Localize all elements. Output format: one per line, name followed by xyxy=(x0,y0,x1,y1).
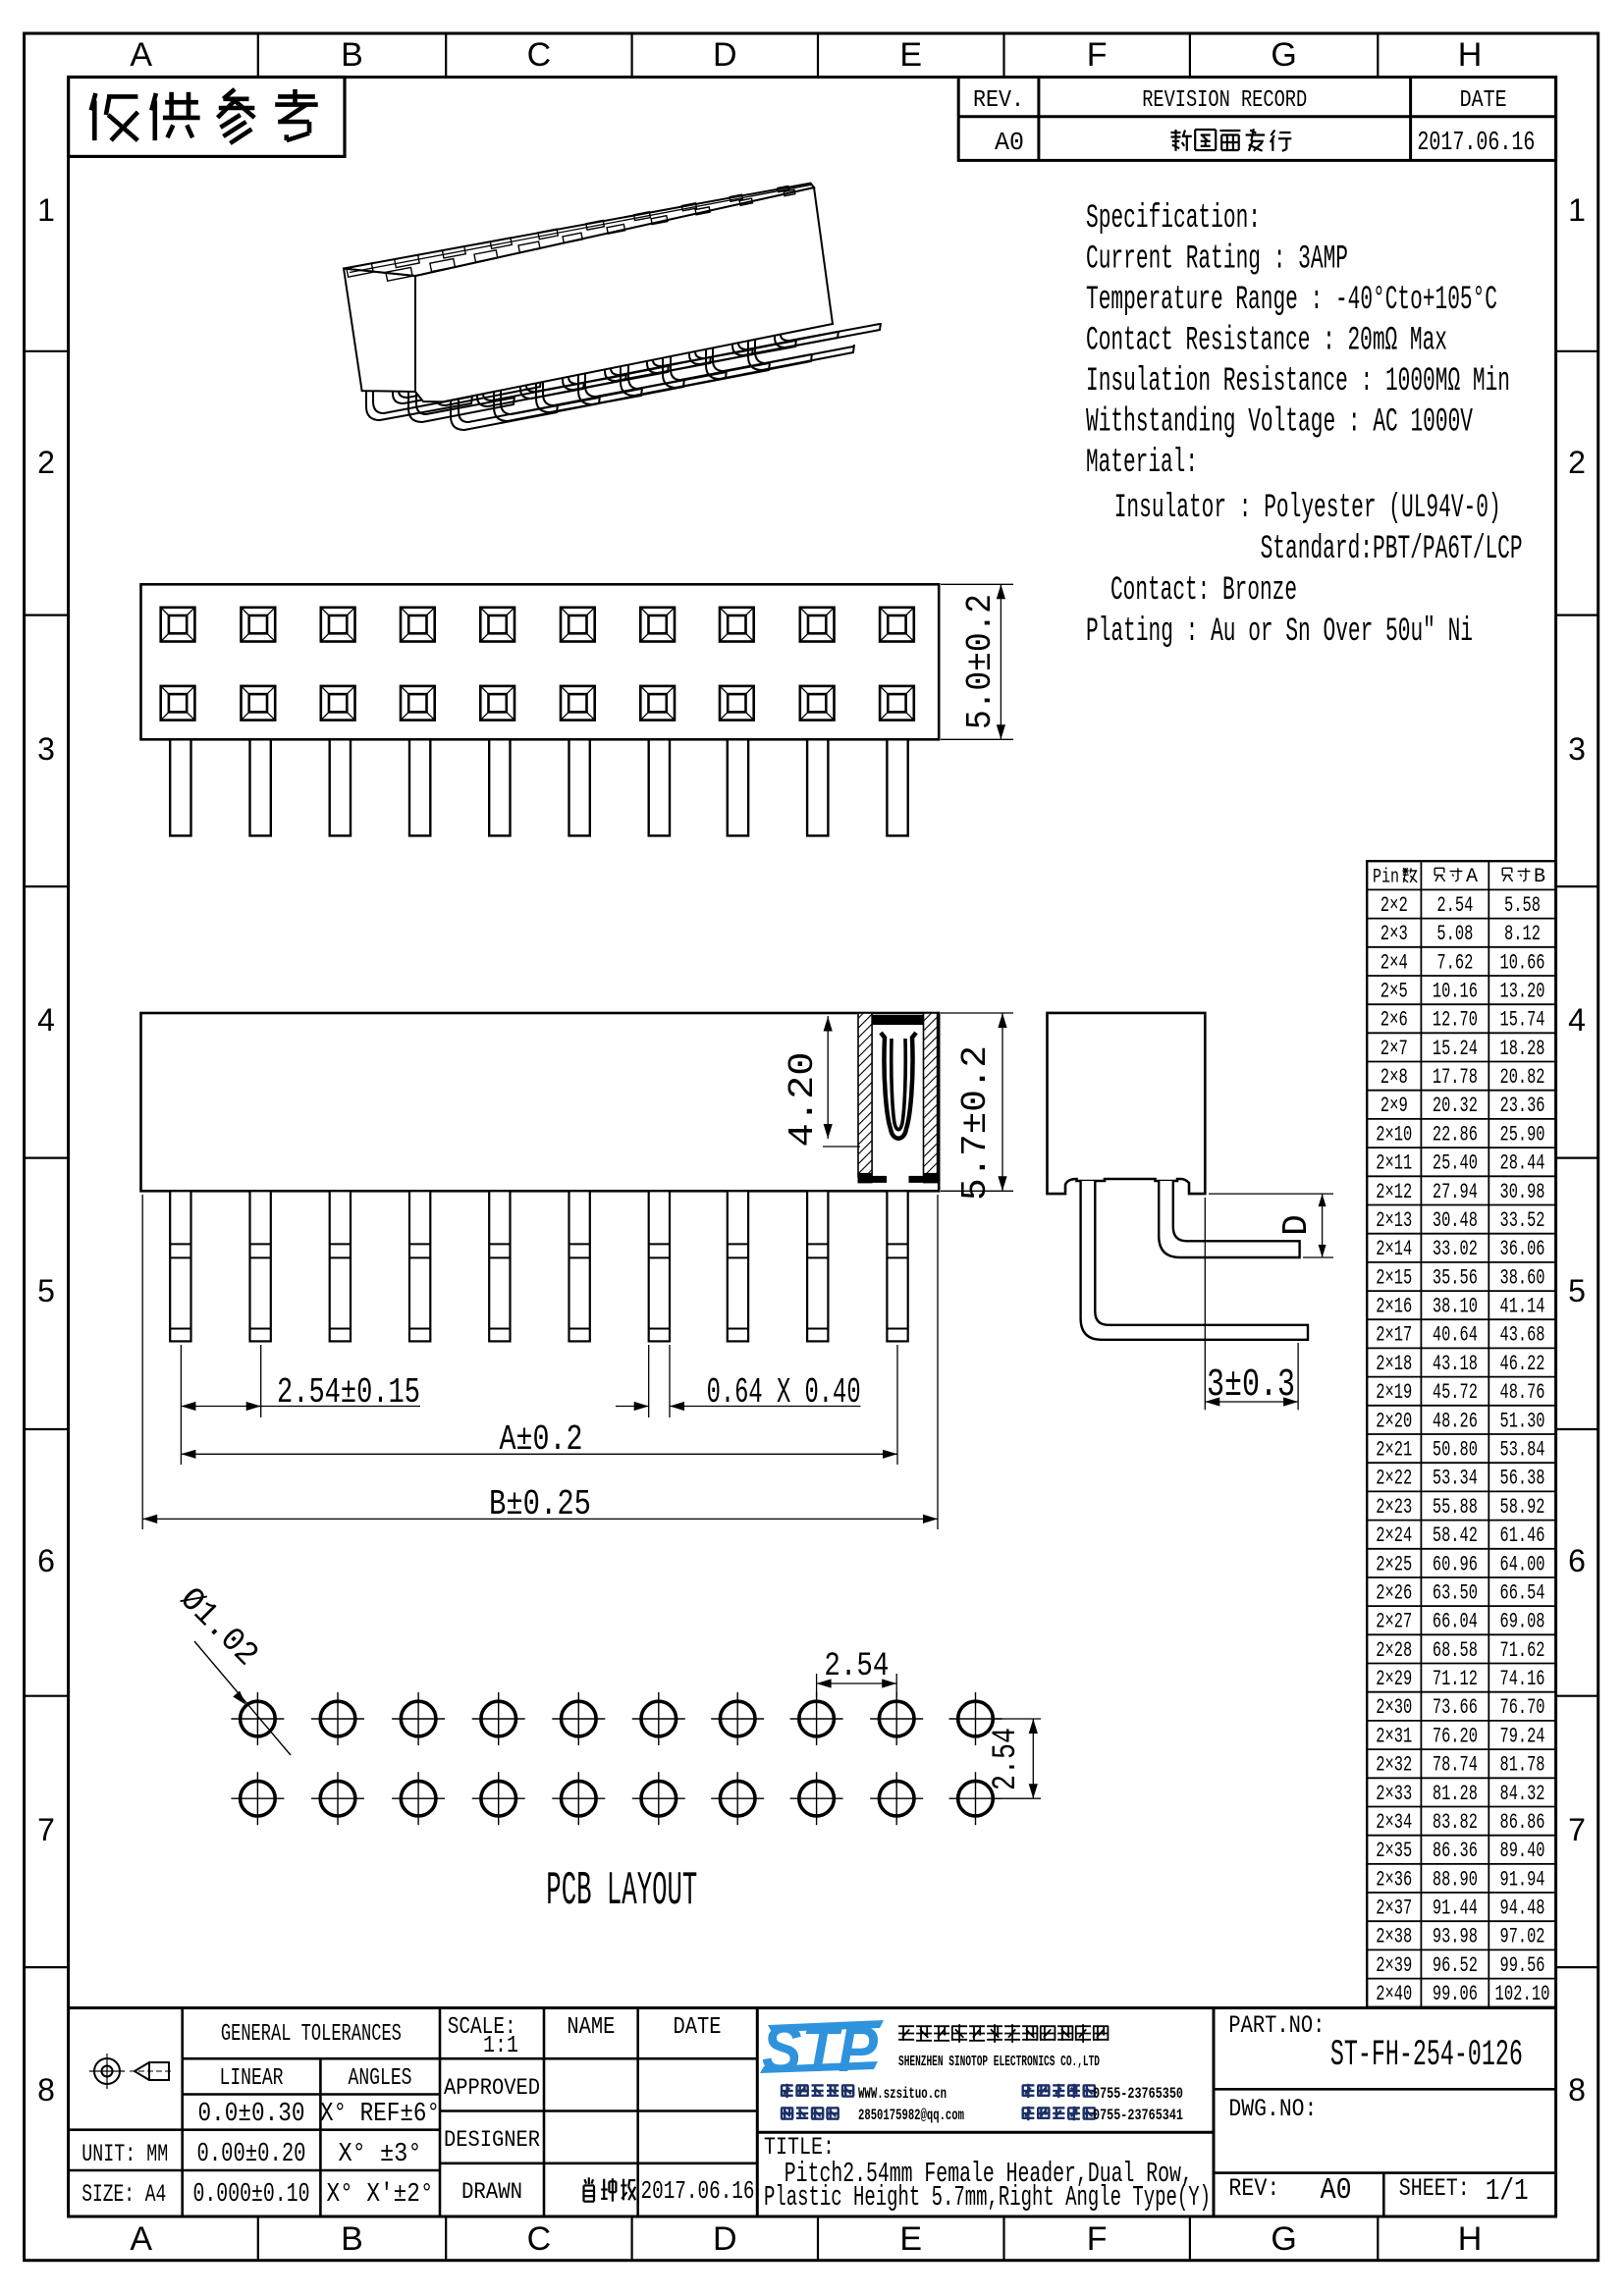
svg-text:2×20: 2×20 xyxy=(1376,1409,1412,1433)
svg-text:3±0.3: 3±0.3 xyxy=(1207,1363,1295,1408)
svg-text:7: 7 xyxy=(37,1812,55,1847)
svg-text:2×31: 2×31 xyxy=(1376,1724,1412,1748)
svg-text:10.66: 10.66 xyxy=(1500,950,1545,975)
svg-text:DWG.NO:: DWG.NO: xyxy=(1228,2095,1317,2123)
svg-text:91.44: 91.44 xyxy=(1433,1896,1478,1921)
svg-text:2017.06.16: 2017.06.16 xyxy=(641,2176,755,2206)
svg-text:Contact: Bronze: Contact: Bronze xyxy=(1110,572,1297,610)
svg-text:2.54±0.15: 2.54±0.15 xyxy=(277,1372,420,1413)
svg-text:REV.: REV. xyxy=(973,87,1024,114)
svg-text:55.88: 55.88 xyxy=(1433,1495,1478,1520)
svg-text:83.82: 83.82 xyxy=(1433,1810,1478,1835)
svg-text:41.14: 41.14 xyxy=(1500,1295,1545,1319)
svg-text:61.46: 61.46 xyxy=(1500,1523,1545,1548)
svg-text:2×24: 2×24 xyxy=(1376,1523,1412,1548)
svg-text:2.54: 2.54 xyxy=(988,1728,1025,1790)
svg-text:ST-FH-254-0126: ST-FH-254-0126 xyxy=(1330,2035,1523,2076)
svg-text:91.94: 91.94 xyxy=(1500,1867,1545,1892)
svg-text:81.28: 81.28 xyxy=(1433,1782,1478,1806)
svg-text:79.24: 79.24 xyxy=(1500,1724,1545,1748)
svg-text:15.24: 15.24 xyxy=(1433,1037,1478,1061)
svg-text:G: G xyxy=(1271,2220,1296,2258)
svg-text:28.44: 28.44 xyxy=(1500,1151,1545,1176)
svg-text:2017.06.16: 2017.06.16 xyxy=(1417,129,1535,158)
svg-text:Standard:PBT/PA6T/LCP: Standard:PBT/PA6T/LCP xyxy=(1261,531,1523,568)
svg-text:H: H xyxy=(1458,2220,1483,2258)
svg-text:2×18: 2×18 xyxy=(1376,1352,1412,1376)
svg-text:4: 4 xyxy=(1568,1002,1586,1038)
svg-text:F: F xyxy=(1087,2220,1108,2258)
svg-text:Plastic Height 5.7mm,Right Ang: Plastic Height 5.7mm,Right Angle Type(Y) xyxy=(764,2181,1211,2214)
svg-text:A0: A0 xyxy=(995,128,1024,157)
svg-text:58.92: 58.92 xyxy=(1500,1495,1545,1520)
svg-text:Insulation Resistance : 1000MΩ: Insulation Resistance : 1000MΩ Min xyxy=(1086,363,1510,400)
svg-text:G: G xyxy=(1271,36,1296,74)
svg-text:WWW.szsituo.cn: WWW.szsituo.cn xyxy=(858,2085,947,2103)
svg-text:1/1: 1/1 xyxy=(1486,2174,1529,2209)
svg-text:A0: A0 xyxy=(1321,2173,1352,2208)
svg-text:2×30: 2×30 xyxy=(1376,1695,1412,1720)
svg-text:Insulator : Polyester (UL94V-0: Insulator : Polyester (UL94V-0) xyxy=(1114,490,1501,527)
svg-text:REV:: REV: xyxy=(1228,2174,1279,2203)
svg-text:2×22: 2×22 xyxy=(1376,1467,1412,1491)
svg-text:2×11: 2×11 xyxy=(1376,1151,1412,1176)
svg-text:Contact Resistance : 20mΩ Max: Contact Resistance : 20mΩ Max xyxy=(1086,323,1447,360)
svg-text:76.20: 76.20 xyxy=(1433,1724,1478,1748)
svg-text:84.32: 84.32 xyxy=(1500,1782,1545,1806)
svg-text:2×19: 2×19 xyxy=(1376,1380,1412,1405)
svg-text:B: B xyxy=(341,36,363,74)
svg-text:53.84: 53.84 xyxy=(1500,1438,1545,1463)
svg-text:6: 6 xyxy=(37,1543,55,1578)
svg-text:48.76: 48.76 xyxy=(1500,1380,1545,1405)
svg-text:2.54: 2.54 xyxy=(824,1648,889,1685)
svg-text:0.64 X 0.40: 0.64 X 0.40 xyxy=(707,1372,861,1413)
svg-text:94.48: 94.48 xyxy=(1500,1896,1545,1921)
svg-text:4: 4 xyxy=(37,1002,55,1038)
svg-text:X° REF±6°: X° REF±6° xyxy=(320,2100,440,2129)
svg-text:D: D xyxy=(713,36,737,74)
svg-text:ANGLES: ANGLES xyxy=(349,2065,412,2092)
svg-text:33.02: 33.02 xyxy=(1433,1237,1478,1261)
svg-text:E: E xyxy=(899,2220,922,2258)
svg-text:Plating : Au or Sn Over 50u" N: Plating : Au or Sn Over 50u" Ni xyxy=(1086,614,1473,651)
svg-text:38.10: 38.10 xyxy=(1433,1295,1478,1319)
svg-text:71.12: 71.12 xyxy=(1433,1667,1478,1691)
svg-text:2×40: 2×40 xyxy=(1376,1982,1412,2006)
svg-text:38.60: 38.60 xyxy=(1500,1265,1545,1290)
svg-text:D: D xyxy=(1276,1214,1317,1236)
svg-text:0.0±0.30: 0.0±0.30 xyxy=(198,2100,305,2129)
svg-text:1: 1 xyxy=(37,192,55,228)
svg-text:81.78: 81.78 xyxy=(1500,1753,1545,1778)
svg-text:96.52: 96.52 xyxy=(1433,1953,1478,1978)
svg-text:56.38: 56.38 xyxy=(1500,1467,1545,1491)
svg-text:53.34: 53.34 xyxy=(1433,1467,1478,1491)
svg-text:DESIGNER: DESIGNER xyxy=(444,2127,540,2153)
svg-text:13.20: 13.20 xyxy=(1500,980,1545,1004)
svg-text:B: B xyxy=(1534,866,1545,888)
svg-text:43.18: 43.18 xyxy=(1433,1352,1478,1376)
svg-text:88.90: 88.90 xyxy=(1433,1867,1478,1892)
svg-text:1: 1 xyxy=(1568,192,1586,228)
svg-text:71.62: 71.62 xyxy=(1500,1638,1545,1663)
svg-text:SHEET:: SHEET: xyxy=(1399,2174,1470,2203)
svg-text:2×9: 2×9 xyxy=(1380,1094,1408,1118)
svg-text:66.04: 66.04 xyxy=(1433,1610,1478,1634)
svg-text:1:1: 1:1 xyxy=(483,2033,518,2059)
svg-text:D: D xyxy=(713,2220,737,2258)
svg-text:PCB LAYOUT: PCB LAYOUT xyxy=(546,1865,697,1918)
svg-text:5: 5 xyxy=(1568,1273,1586,1308)
svg-text:LINEAR: LINEAR xyxy=(220,2065,284,2092)
svg-text:78.74: 78.74 xyxy=(1433,1753,1478,1778)
svg-text:NAME: NAME xyxy=(567,2014,615,2041)
svg-text:18.28: 18.28 xyxy=(1500,1037,1545,1061)
svg-text:33.52: 33.52 xyxy=(1500,1208,1545,1233)
svg-text:A: A xyxy=(1466,866,1478,888)
svg-text:17.78: 17.78 xyxy=(1433,1065,1478,1090)
svg-text:2×23: 2×23 xyxy=(1376,1495,1412,1520)
svg-text:2×14: 2×14 xyxy=(1376,1237,1412,1261)
svg-text:68.58: 68.58 xyxy=(1433,1638,1478,1663)
svg-text:7: 7 xyxy=(1568,1812,1586,1847)
svg-text:30.48: 30.48 xyxy=(1433,1208,1478,1233)
svg-text:10.16: 10.16 xyxy=(1433,980,1478,1004)
svg-text:2×12: 2×12 xyxy=(1376,1180,1412,1204)
svg-text:43.68: 43.68 xyxy=(1500,1323,1545,1348)
svg-text:DRAWN: DRAWN xyxy=(461,2179,522,2205)
svg-text:30.98: 30.98 xyxy=(1500,1180,1545,1204)
svg-text:2: 2 xyxy=(37,445,55,480)
svg-text:X° X'±2°: X° X'±2° xyxy=(327,2180,434,2210)
svg-text:8.12: 8.12 xyxy=(1504,922,1541,946)
svg-text:2×4: 2×4 xyxy=(1380,950,1408,975)
svg-text:50.80: 50.80 xyxy=(1433,1438,1478,1463)
svg-text:2×7: 2×7 xyxy=(1380,1037,1408,1061)
svg-text:64.00: 64.00 xyxy=(1500,1552,1545,1576)
svg-text:99.56: 99.56 xyxy=(1500,1953,1545,1978)
svg-text:F: F xyxy=(1087,36,1108,74)
svg-text:58.42: 58.42 xyxy=(1433,1523,1478,1548)
svg-text:E: E xyxy=(899,36,922,74)
svg-text:12.70: 12.70 xyxy=(1433,1008,1478,1033)
svg-text:25.90: 25.90 xyxy=(1500,1122,1545,1147)
svg-text:2×34: 2×34 xyxy=(1376,1810,1412,1835)
svg-text:SIZE: A4: SIZE: A4 xyxy=(81,2180,166,2209)
svg-text:2×36: 2×36 xyxy=(1376,1867,1412,1892)
svg-text:20.82: 20.82 xyxy=(1500,1065,1545,1090)
svg-text:2×38: 2×38 xyxy=(1376,1925,1412,1949)
svg-text:2×32: 2×32 xyxy=(1376,1753,1412,1778)
svg-text:2×35: 2×35 xyxy=(1376,1839,1412,1863)
svg-text:63.50: 63.50 xyxy=(1433,1581,1478,1606)
svg-text:48.26: 48.26 xyxy=(1433,1409,1478,1433)
svg-text:46.22: 46.22 xyxy=(1500,1352,1545,1376)
svg-text:2×3: 2×3 xyxy=(1380,922,1408,946)
svg-text:SHENZHEN SINOTOP ELECTRONICS C: SHENZHEN SINOTOP ELECTRONICS CO.,LTD xyxy=(898,2054,1100,2070)
svg-text:0.000±0.10: 0.000±0.10 xyxy=(193,2180,310,2210)
svg-text:Temperature Range : -40°Cto+10: Temperature Range : -40°Cto+105°C xyxy=(1086,282,1497,319)
svg-text:B: B xyxy=(341,2220,363,2258)
svg-text:5.0±0.2: 5.0±0.2 xyxy=(960,594,1001,729)
svg-text:74.16: 74.16 xyxy=(1500,1667,1545,1691)
svg-text:93.98: 93.98 xyxy=(1433,1925,1478,1949)
svg-text:0755-23765341: 0755-23765341 xyxy=(1093,2107,1183,2124)
svg-text:A: A xyxy=(130,36,152,74)
svg-text:UNIT: MM: UNIT: MM xyxy=(81,2140,168,2168)
svg-text:2×33: 2×33 xyxy=(1376,1782,1412,1806)
svg-text:C: C xyxy=(527,36,552,74)
svg-text:2×2: 2×2 xyxy=(1380,893,1408,918)
svg-text:51.30: 51.30 xyxy=(1500,1409,1545,1433)
svg-text:2×28: 2×28 xyxy=(1376,1638,1412,1663)
svg-text:2: 2 xyxy=(1568,445,1586,480)
svg-text:99.06: 99.06 xyxy=(1433,1982,1478,2006)
svg-text:X° ±3°: X° ±3° xyxy=(339,2140,422,2169)
svg-text:2×26: 2×26 xyxy=(1376,1581,1412,1606)
svg-text:102.10: 102.10 xyxy=(1495,1982,1550,2006)
svg-text:5.08: 5.08 xyxy=(1436,922,1473,946)
svg-text:5.7±0.2: 5.7±0.2 xyxy=(955,1045,996,1201)
svg-text:25.40: 25.40 xyxy=(1433,1151,1478,1176)
svg-text:B±0.25: B±0.25 xyxy=(489,1484,591,1524)
svg-text:Material:: Material: xyxy=(1086,445,1198,482)
svg-text:APPROVED: APPROVED xyxy=(444,2075,540,2101)
svg-text:DATE: DATE xyxy=(674,2014,722,2041)
svg-text:86.86: 86.86 xyxy=(1500,1810,1545,1835)
svg-text:20.32: 20.32 xyxy=(1433,1094,1478,1118)
svg-text:4.20: 4.20 xyxy=(783,1052,823,1148)
svg-text:Specification:: Specification: xyxy=(1086,200,1261,238)
svg-text:PART.NO:: PART.NO: xyxy=(1228,2011,1325,2040)
svg-text:2×15: 2×15 xyxy=(1376,1265,1412,1290)
svg-text:2×8: 2×8 xyxy=(1380,1065,1408,1090)
svg-text:C: C xyxy=(527,2220,552,2258)
svg-text:2×6: 2×6 xyxy=(1380,1008,1408,1033)
svg-text:0755-23765350: 0755-23765350 xyxy=(1093,2085,1183,2103)
svg-text:8: 8 xyxy=(37,2072,55,2108)
svg-text:2×27: 2×27 xyxy=(1376,1610,1412,1634)
svg-text:69.08: 69.08 xyxy=(1500,1610,1545,1634)
svg-text:2.54: 2.54 xyxy=(1436,893,1473,918)
svg-text:Current Rating : 3AMP: Current Rating : 3AMP xyxy=(1086,241,1348,279)
svg-text:89.40: 89.40 xyxy=(1500,1839,1545,1863)
svg-text:3: 3 xyxy=(1568,731,1586,767)
svg-text:6: 6 xyxy=(1568,1543,1586,1578)
svg-text:73.66: 73.66 xyxy=(1433,1695,1478,1720)
svg-text:Withstanding Voltage : AC 1000: Withstanding Voltage : AC 1000V xyxy=(1086,404,1473,442)
svg-text:36.06: 36.06 xyxy=(1500,1237,1545,1261)
svg-text:2×17: 2×17 xyxy=(1376,1323,1412,1348)
svg-text:2×10: 2×10 xyxy=(1376,1122,1412,1147)
svg-text:40.64: 40.64 xyxy=(1433,1323,1478,1348)
svg-text:7.62: 7.62 xyxy=(1436,950,1473,975)
svg-text:A: A xyxy=(130,2220,152,2258)
svg-text:86.36: 86.36 xyxy=(1433,1839,1478,1863)
svg-text:27.94: 27.94 xyxy=(1433,1180,1478,1204)
svg-text:8: 8 xyxy=(1568,2072,1586,2108)
svg-text:2×16: 2×16 xyxy=(1376,1295,1412,1319)
svg-text:15.74: 15.74 xyxy=(1500,1008,1545,1033)
svg-text:45.72: 45.72 xyxy=(1433,1380,1478,1405)
svg-text:GENERAL TOLERANCES: GENERAL TOLERANCES xyxy=(221,2021,402,2048)
svg-text:A±0.2: A±0.2 xyxy=(500,1419,583,1460)
svg-text:H: H xyxy=(1458,36,1483,74)
svg-text:2×29: 2×29 xyxy=(1376,1667,1412,1691)
svg-text:2×13: 2×13 xyxy=(1376,1208,1412,1233)
svg-text:2×5: 2×5 xyxy=(1380,980,1408,1004)
svg-text:60.96: 60.96 xyxy=(1433,1552,1478,1576)
svg-text:2850175982@qq.com: 2850175982@qq.com xyxy=(858,2107,964,2124)
svg-text:DATE: DATE xyxy=(1460,87,1507,114)
svg-text:2×37: 2×37 xyxy=(1376,1896,1412,1921)
svg-text:0.00±0.20: 0.00±0.20 xyxy=(197,2140,306,2169)
svg-text:5.58: 5.58 xyxy=(1504,893,1541,918)
svg-text:23.36: 23.36 xyxy=(1500,1094,1545,1118)
svg-text:97.02: 97.02 xyxy=(1500,1925,1545,1949)
svg-text:2×39: 2×39 xyxy=(1376,1953,1412,1978)
svg-text:3: 3 xyxy=(37,731,55,767)
svg-text:2×21: 2×21 xyxy=(1376,1438,1412,1463)
svg-text:5: 5 xyxy=(37,1273,55,1308)
svg-text:REVISION RECORD: REVISION RECORD xyxy=(1142,87,1307,114)
svg-text:Pin: Pin xyxy=(1373,867,1399,889)
svg-text:2×25: 2×25 xyxy=(1376,1552,1412,1576)
svg-text:66.54: 66.54 xyxy=(1500,1581,1545,1606)
svg-text:35.56: 35.56 xyxy=(1433,1265,1478,1290)
svg-text:76.70: 76.70 xyxy=(1500,1695,1545,1720)
svg-text:22.86: 22.86 xyxy=(1433,1122,1478,1147)
